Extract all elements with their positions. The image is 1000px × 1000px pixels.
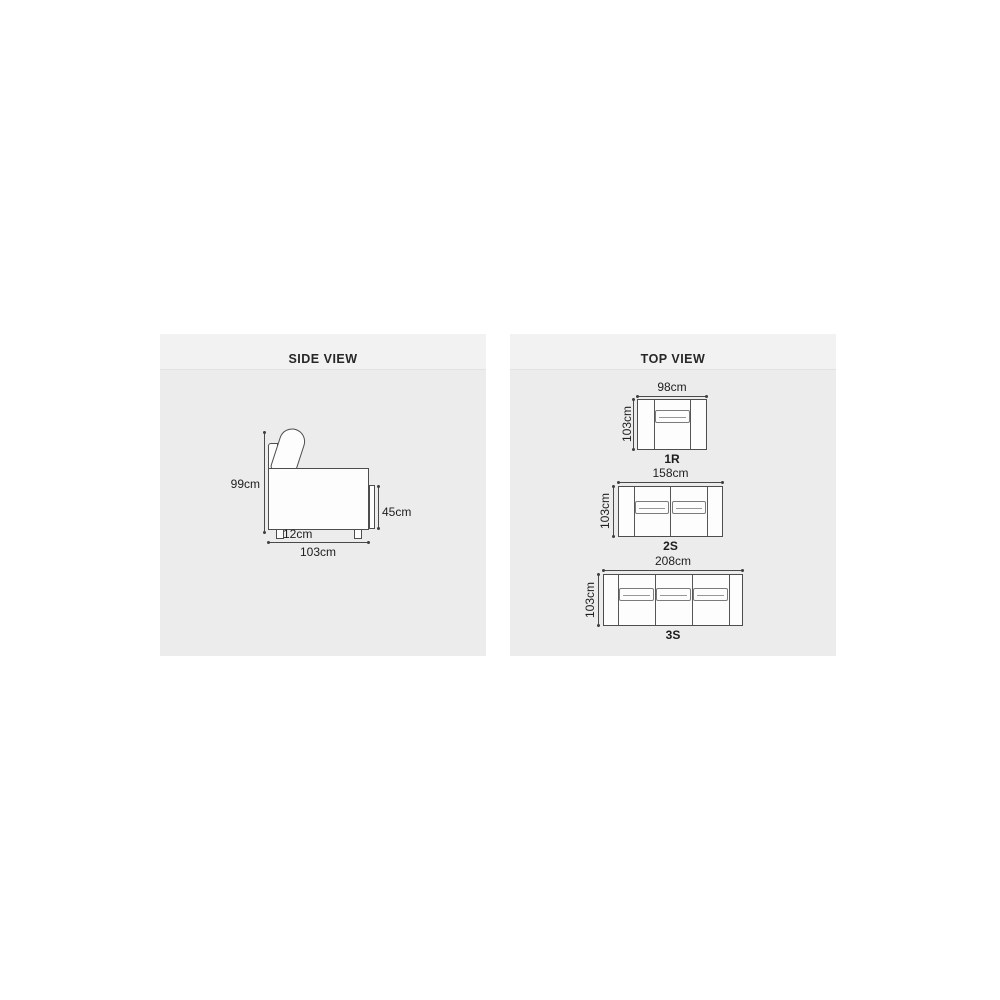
3s-depth-label: 103cm [583,581,597,619]
3s-depth-dimension-line [598,574,599,626]
3s-width-dimension-line [603,570,743,571]
1r-armrest-line-left [654,400,655,449]
furniture-dimensions-image: SIDE VIEW 99cm 103cm 45cm 12cm TOP VIEW … [0,0,1000,1000]
seat-height-dimension-label: 45cm [382,505,411,519]
1r-outline [637,399,707,450]
3s-armrest-line-right [729,575,730,625]
2s-width-label: 158cm [618,466,723,480]
height-dimension-line [264,432,265,533]
width-dimension-line [268,542,369,543]
1r-variant-label: 1R [637,452,707,466]
2s-back-cushion-left [635,501,669,514]
1r-armrest-line-right [690,400,691,449]
1r-width-dimension-line [637,396,707,397]
3s-variant-label: 3S [603,628,743,642]
top-view-title: TOP VIEW [510,352,836,366]
sofa-body-side [268,468,369,530]
3s-back-cushion-right [693,588,728,601]
1r-depth-label: 103cm [620,405,634,443]
leg-height-dimension-label: 12cm [283,527,312,541]
width-dimension-label: 103cm [288,545,348,559]
2s-seat-divider [670,487,671,536]
1r-back-cushion [655,410,690,423]
side-view-title: SIDE VIEW [160,352,486,366]
2s-depth-dimension-line [613,486,614,537]
2s-back-cushion-right [672,501,706,514]
sofa-front-edge [369,485,375,529]
2s-armrest-line-right [707,487,708,536]
3s-back-cushion-left [619,588,654,601]
seat-height-dimension-line [378,486,379,529]
height-dimension-label: 99cm [226,477,260,491]
3s-width-label: 208cm [603,554,743,568]
3s-back-cushion-center [656,588,691,601]
sofa-leg-back [354,529,362,539]
2s-width-dimension-line [618,482,723,483]
2s-depth-label: 103cm [598,492,612,530]
2s-variant-label: 2S [618,539,723,553]
1r-width-label: 98cm [637,380,707,394]
